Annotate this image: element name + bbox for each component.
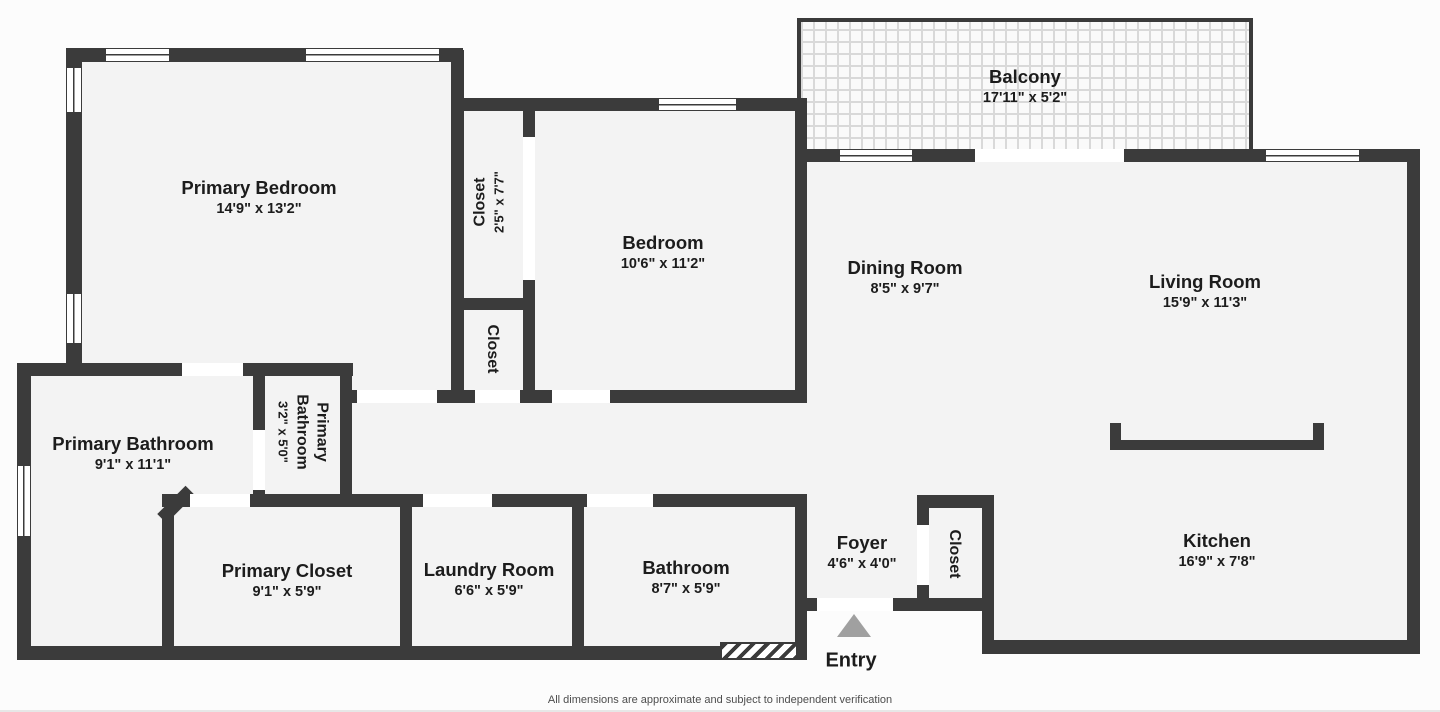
room-dims: 14'9" x 13'2" bbox=[181, 200, 336, 218]
room-name: Closet bbox=[482, 325, 502, 374]
room-dims: 15'9" x 11'3" bbox=[1149, 294, 1261, 312]
window bbox=[66, 293, 82, 344]
room-dims: 6'6" x 5'9" bbox=[424, 582, 555, 600]
window bbox=[305, 48, 440, 62]
door-opening bbox=[190, 494, 250, 507]
room-label-bathroom: Bathroom 8'7" x 5'9" bbox=[642, 556, 729, 598]
door-opening bbox=[587, 494, 653, 507]
room-label-foyer-closet: Closet bbox=[944, 530, 964, 579]
door-opening bbox=[917, 525, 929, 585]
room-name: Closet bbox=[470, 171, 490, 233]
wall bbox=[162, 514, 174, 654]
room-dims: 4'6" x 4'0" bbox=[827, 555, 896, 573]
room-name: Kitchen bbox=[1178, 529, 1255, 552]
window bbox=[17, 465, 31, 537]
room-name: Dining Room bbox=[847, 256, 962, 279]
window bbox=[1265, 149, 1360, 162]
room-name: Primary Bedroom bbox=[181, 176, 336, 199]
wall bbox=[451, 98, 807, 111]
window bbox=[839, 149, 913, 162]
door-opening bbox=[357, 390, 437, 403]
room-dims: 9'1" x 11'1" bbox=[52, 456, 213, 474]
floor-living-area bbox=[807, 161, 1408, 642]
hatched-wall bbox=[720, 642, 798, 660]
room-name: Closet bbox=[944, 530, 964, 579]
room-dims: 16'9" x 7'8" bbox=[1178, 553, 1255, 571]
floor-primary-bedroom bbox=[82, 62, 452, 375]
wall bbox=[400, 494, 412, 654]
room-name: Living Room bbox=[1149, 270, 1261, 293]
room-dims: 17'11" x 5'2" bbox=[983, 89, 1067, 107]
entry-label: Entry bbox=[825, 650, 876, 673]
window bbox=[105, 48, 170, 62]
room-label-dining-room: Dining Room 8'5" x 9'7" bbox=[847, 256, 962, 298]
room-label-balcony: Balcony 17'11" x 5'2" bbox=[983, 65, 1067, 107]
room-name: Laundry Room bbox=[424, 558, 555, 581]
floor-plan: Entry Primary Bedroom 14'9" x 13'2" Bedr… bbox=[0, 0, 1440, 712]
room-label-closet-small: Closet bbox=[482, 325, 502, 374]
outside-cutout bbox=[807, 608, 982, 652]
wall bbox=[795, 495, 807, 654]
room-label-closet-tall: Closet 2'5" x 7'7" bbox=[470, 171, 507, 233]
room-dims: 8'7" x 5'9" bbox=[642, 580, 729, 598]
room-name: Foyer bbox=[827, 531, 896, 554]
wall bbox=[1407, 149, 1420, 654]
room-name: Bathroom bbox=[642, 556, 729, 579]
window bbox=[66, 67, 82, 113]
wall bbox=[572, 494, 584, 654]
room-label-primary-closet: Primary Closet 9'1" x 5'9" bbox=[222, 559, 353, 601]
closet-opening bbox=[523, 137, 535, 280]
wall bbox=[795, 98, 807, 403]
wall bbox=[340, 363, 352, 495]
door-opening bbox=[253, 430, 265, 490]
disclaimer-text: All dimensions are approximate and subje… bbox=[0, 694, 1440, 706]
room-label-laundry-room: Laundry Room 6'6" x 5'9" bbox=[424, 558, 555, 600]
room-label-bedroom: Bedroom 10'6" x 11'2" bbox=[621, 231, 705, 273]
window bbox=[658, 98, 737, 111]
door-opening bbox=[182, 363, 243, 376]
door-opening bbox=[475, 390, 520, 403]
door-opening bbox=[552, 390, 610, 403]
kitchen-counter bbox=[1110, 440, 1324, 450]
room-name: Primary Closet bbox=[222, 559, 353, 582]
room-name: Primary Bathroom bbox=[292, 394, 332, 470]
room-dims: 9'1" x 5'9" bbox=[222, 583, 353, 601]
room-label-primary-bedroom: Primary Bedroom 14'9" x 13'2" bbox=[181, 176, 336, 218]
room-label-living-room: Living Room 15'9" x 11'3" bbox=[1149, 270, 1261, 312]
balcony-door-opening bbox=[975, 149, 1124, 162]
wall bbox=[982, 495, 994, 654]
wall bbox=[17, 646, 807, 660]
room-label-foyer: Foyer 4'6" x 4'0" bbox=[827, 531, 896, 573]
room-label-primary-bathroom: Primary Bathroom 9'1" x 11'1" bbox=[52, 432, 213, 474]
room-name: Balcony bbox=[983, 65, 1067, 88]
room-dims: 2'5" x 7'7" bbox=[491, 171, 507, 233]
room-name: Bedroom bbox=[621, 231, 705, 254]
room-name: Primary Bathroom bbox=[52, 432, 213, 455]
room-dims: 3'2" x 5'0" bbox=[274, 394, 290, 470]
room-dims: 10'6" x 11'2" bbox=[621, 255, 705, 273]
wall bbox=[451, 298, 535, 310]
room-dims: 8'5" x 9'7" bbox=[847, 280, 962, 298]
room-label-primary-bathroom-small: Primary Bathroom 3'2" x 5'0" bbox=[274, 394, 331, 470]
entry-door-opening bbox=[817, 598, 893, 611]
door-opening bbox=[423, 494, 492, 507]
entry-arrow-icon bbox=[837, 614, 871, 637]
room-label-kitchen: Kitchen 16'9" x 7'8" bbox=[1178, 529, 1255, 571]
wall bbox=[982, 640, 1420, 654]
